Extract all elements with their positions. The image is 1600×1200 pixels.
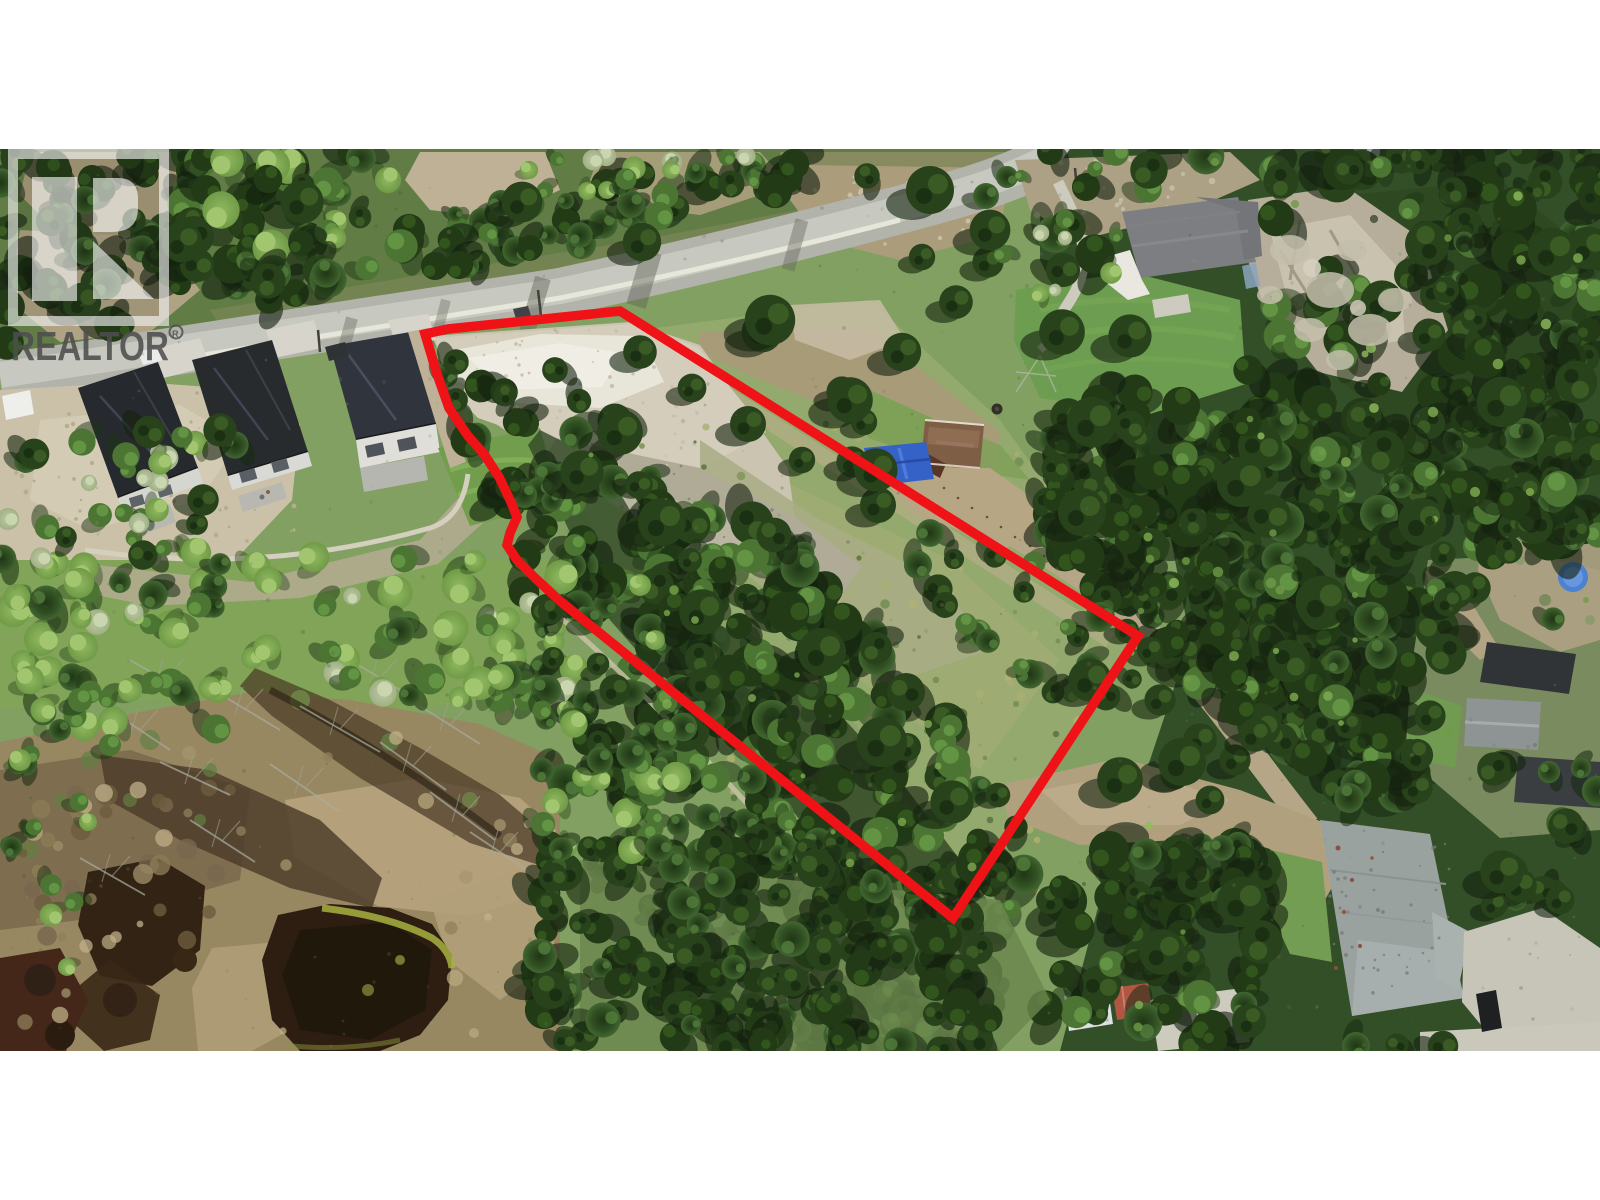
svg-text:R: R xyxy=(172,329,179,339)
svg-text:REALTOR: REALTOR xyxy=(11,323,169,369)
